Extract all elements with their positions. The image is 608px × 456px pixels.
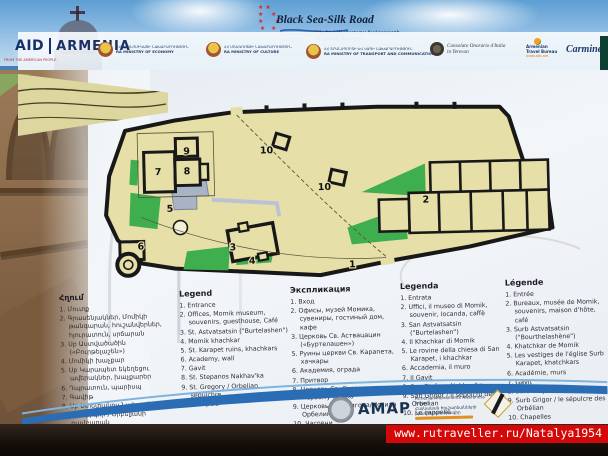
legend-item: 2. Uffici, il museo di Momik, souvenir, …	[400, 302, 504, 321]
map-marker-5: 5	[167, 204, 174, 215]
map-marker-7: 7	[155, 167, 162, 178]
legend-title: Legenda	[400, 280, 504, 292]
map-marker-1: 1	[349, 259, 356, 270]
legend-title: Экспликация	[290, 283, 398, 295]
info-board-photo: ★ ★★ ★★ ★ ★ ★ Black Sea-Silk Road corrid…	[0, 0, 608, 456]
amap-line2: Հայկական հուշարձանների իրազեկման ծրագիր	[415, 404, 495, 416]
map-marker-9: 9	[183, 146, 190, 157]
legend-item: 2. Գրասենյակներ, Մոմիկի թանգարան, հուշան…	[60, 313, 173, 340]
amap-acronym: AMAP	[358, 399, 412, 418]
legend-item: 5. Le rovine della chiesa di San Karapet…	[401, 346, 505, 365]
legend-title: Legend	[179, 287, 287, 299]
map-marker-4: 4	[249, 256, 256, 267]
legend-item: 5. Руины церкви Св. Карапета, хачкары	[291, 348, 399, 367]
legend-item: 2. Offices, Momik museum, souvenirs, gue…	[179, 309, 287, 328]
site-map: 1234567891010	[76, 87, 581, 299]
map-marker-8: 8	[184, 166, 191, 177]
map-marker-10: 10	[318, 182, 332, 193]
amap-url-bar	[415, 416, 473, 420]
legend-item: 2. Bureaux, musée de Momik, souvenirs, m…	[505, 298, 606, 325]
map-marker-6: 6	[137, 241, 144, 252]
legend-item: 3. Surb Astvatsatsin ("Bourthelashène")	[506, 324, 606, 343]
board-content: 1234567891010 Հղում1. Մուտք2. Գրասենյակն…	[0, 0, 608, 456]
map-marker-2: 2	[422, 194, 429, 205]
amap-logo: AMAP Armenian Monuments Awareness Projec…	[328, 393, 496, 423]
legend-item: 10. Chapelles	[508, 413, 608, 424]
legend-item: 2. Офисы, музей Момика, сувениры, гостин…	[290, 305, 399, 332]
legend-item: 5. Սբ Կարապետ եկեղեցու ավերակներ, խաչքար…	[61, 365, 173, 384]
map-marker-10: 10	[260, 145, 274, 156]
partner-diamond-logo	[486, 392, 511, 417]
legend-title: Հղում	[59, 291, 171, 303]
amap-seal-icon	[328, 396, 355, 423]
legend-title: Légende	[505, 276, 605, 287]
legend-item: 3. Սբ Աստվածածին («Բուրթելաշեն»)	[60, 338, 172, 357]
legend-item: 5. Les vestiges de l'église Surb Karapet…	[507, 350, 607, 369]
legend-item: 3. San Astvatsatsin ("Burtelashen")	[401, 319, 505, 338]
corner-tower	[117, 254, 140, 277]
legend-item: 3. Церковь Св. Аствацацин («Буртелашен»)	[291, 331, 399, 350]
watermark: www.rutraveller.ru/Natalya1954	[386, 425, 608, 443]
map-marker-3: 3	[229, 242, 236, 253]
